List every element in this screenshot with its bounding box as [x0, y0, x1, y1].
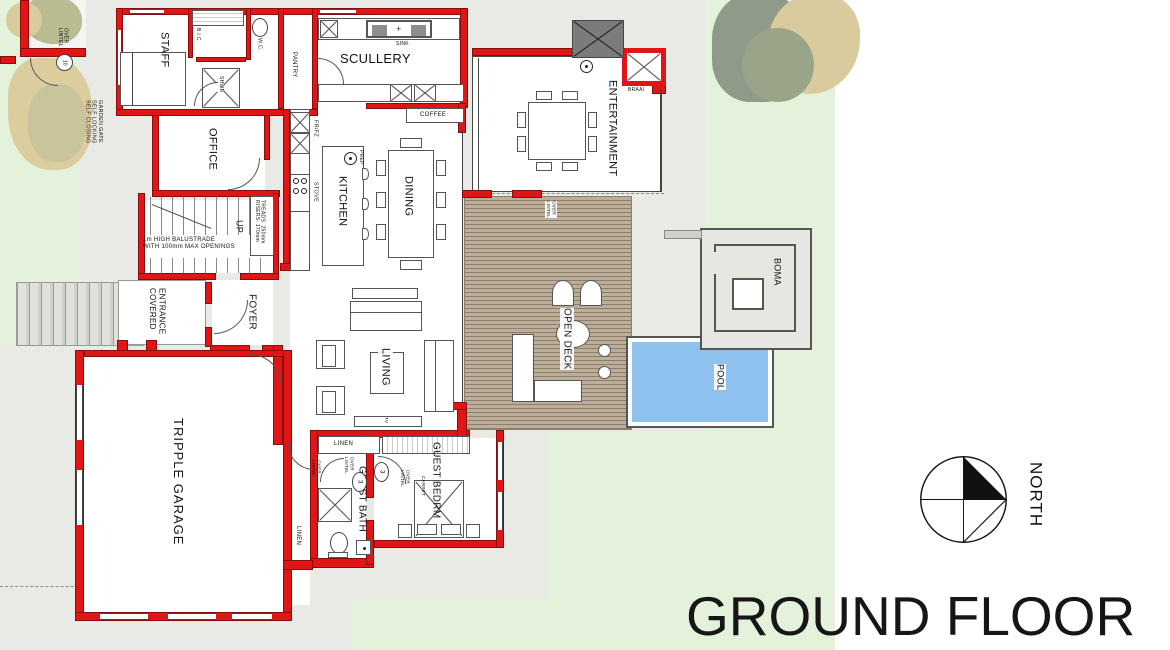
- pillow: [417, 524, 437, 535]
- wc-label: W.C.: [256, 38, 262, 51]
- pantry-label: PANTRY: [290, 52, 297, 78]
- window: [76, 470, 83, 525]
- fridge-freezer: [290, 133, 310, 154]
- closet: [382, 436, 470, 454]
- wall-segment: [196, 57, 246, 62]
- carpet-label: CARPET: [421, 476, 426, 496]
- deck-chair: [580, 280, 602, 306]
- covered-entrance-label: COVERED ENTRANCE: [148, 288, 166, 334]
- toilet-tank: [328, 552, 348, 558]
- sink-unit: +: [366, 20, 432, 38]
- wall-segment: [205, 282, 212, 304]
- window: [320, 9, 356, 14]
- armchair: [316, 340, 345, 369]
- chair: [376, 192, 386, 208]
- dishwasher: [320, 20, 338, 38]
- window: [100, 613, 148, 620]
- deck-chair: [552, 280, 574, 306]
- chair: [588, 136, 597, 152]
- north-label: NORTH: [1026, 462, 1046, 527]
- chair: [436, 224, 446, 240]
- entertainment-label: ENTERTAINMENT: [606, 80, 619, 176]
- kitchen-label: KITCHEN: [336, 176, 349, 226]
- up-label: UP: [234, 220, 244, 233]
- stove-plate: [301, 178, 307, 184]
- chair: [376, 160, 386, 176]
- braai-label: BRAAI: [628, 88, 645, 94]
- lintel-note: LINTEL OVER: [545, 201, 557, 218]
- lintel-note: LINTEL OVER: [56, 28, 68, 47]
- wall-segment: [0, 56, 16, 64]
- pillow: [441, 524, 461, 535]
- wall-segment: [205, 327, 212, 347]
- wall-segment: [138, 273, 216, 280]
- wall-segment: [374, 540, 504, 548]
- wall-segment: [278, 8, 284, 109]
- lintel-line: [462, 193, 664, 194]
- chair: [400, 138, 422, 148]
- wall-segment: [246, 8, 251, 60]
- fridge-label: FR/FZ: [312, 120, 318, 137]
- stove-plate: [293, 188, 299, 194]
- sofa: [350, 301, 422, 331]
- stove-plate: [293, 178, 299, 184]
- wall-segment: [264, 115, 270, 160]
- wall-segment: [283, 109, 290, 269]
- stool: [362, 198, 369, 210]
- door-number: 3: [357, 480, 363, 483]
- chair: [536, 91, 552, 100]
- bed: [120, 52, 186, 106]
- window: [497, 492, 503, 530]
- glass-wall: [462, 196, 463, 402]
- lawn: [352, 600, 548, 650]
- chair: [400, 260, 422, 270]
- guest-bedroom-label: GUEST BEDRM: [430, 442, 442, 518]
- dining-label: DINING: [402, 176, 415, 216]
- side-table: [398, 524, 412, 538]
- chimney: [572, 20, 624, 58]
- pool: [632, 342, 768, 422]
- wall-segment: [310, 558, 374, 568]
- shower: [318, 488, 352, 522]
- window: [497, 442, 503, 480]
- stool: [362, 228, 369, 240]
- stair-treads: [150, 258, 268, 273]
- office-label: OFFICE: [206, 128, 219, 170]
- garden-gate-note: SELF CLOSING SELF LOCKING GARDEN GATE: [84, 100, 103, 144]
- door-number-badge: 3: [374, 462, 389, 482]
- braai-unit: [622, 48, 666, 86]
- chair: [562, 91, 578, 100]
- glass-wall: [478, 58, 479, 192]
- basin: [356, 540, 371, 555]
- deck-side-table: [598, 366, 611, 379]
- wall-segment: [20, 48, 86, 57]
- glass-wall: [660, 90, 661, 192]
- armchair: [316, 386, 345, 415]
- ceiling-fan-icon: [580, 60, 593, 73]
- console-table: [352, 288, 418, 299]
- toilet: [330, 532, 348, 554]
- bic-label: B.I.C.: [194, 28, 200, 42]
- door-number: 3: [379, 470, 385, 473]
- living-label: LIVING: [378, 348, 393, 386]
- compass-icon: [916, 452, 1011, 547]
- wall-segment: [240, 273, 279, 280]
- wall-segment: [512, 190, 542, 198]
- wall-segment: [152, 115, 159, 195]
- chair: [436, 160, 446, 176]
- chair: [562, 162, 578, 171]
- appliance: [414, 84, 436, 102]
- prep-label: PREP: [357, 150, 363, 165]
- prep-bowl-icon: [344, 152, 357, 165]
- bed-line: [132, 53, 133, 105]
- door-number-badge: 3: [352, 472, 367, 492]
- chair: [436, 192, 446, 208]
- scullery-label: SCULLERY: [340, 52, 411, 67]
- pool-label: POOL: [714, 364, 726, 390]
- lintel-note: LINTEL OVER: [400, 470, 410, 487]
- bic-closet: [192, 10, 244, 26]
- door-number: 10: [62, 60, 68, 66]
- wall-segment: [116, 8, 468, 15]
- deck-sofa: [512, 334, 534, 402]
- linen-corridor-label: LINEN: [294, 526, 301, 545]
- deck-sofa: [534, 380, 582, 402]
- boma-opening: [712, 252, 718, 274]
- appliance: [390, 84, 412, 102]
- floor-plan: 10 LINTEL OVER SELF CLOSING SELF LOCKING…: [0, 0, 1170, 650]
- sink-label: SINK: [396, 42, 409, 48]
- glass-wall: [462, 130, 463, 192]
- boma-firepit: [732, 278, 764, 310]
- garage-label: TRIPPLE GARAGE: [170, 418, 185, 545]
- window: [168, 613, 216, 620]
- sofa: [424, 340, 454, 412]
- deck-step: [664, 230, 702, 239]
- tv-label: TV: [384, 417, 389, 423]
- chair: [376, 224, 386, 240]
- shrub: [28, 84, 86, 162]
- window: [232, 613, 272, 620]
- tree-canopy: [742, 28, 814, 102]
- entertainment-table: [528, 102, 586, 160]
- boma-label: BOMA: [772, 258, 782, 286]
- deck-side-table: [598, 344, 611, 357]
- door-number-badge: 10: [56, 54, 73, 71]
- stove-label: STOVE: [312, 182, 318, 202]
- stove-plate: [301, 188, 307, 194]
- page-title: GROUND FLOOR: [686, 584, 1135, 648]
- wall-segment: [273, 345, 283, 445]
- chair: [517, 136, 526, 152]
- stair-spec-note: RISERS: 170mm TREADS: 250mm: [253, 200, 265, 244]
- chair: [517, 112, 526, 128]
- lintel-note: LINTEL OVER: [311, 460, 321, 477]
- lintel-note: LINTEL OVER: [344, 457, 354, 474]
- chair: [588, 112, 597, 128]
- linen-closet-label: LINEN: [334, 441, 353, 448]
- wall-segment: [462, 190, 492, 198]
- site-paving: [0, 345, 80, 612]
- wall-segment: [283, 560, 313, 570]
- stool: [362, 168, 369, 180]
- wall-segment: [283, 350, 292, 618]
- toilet: [252, 18, 268, 37]
- staff-label: STAFF: [158, 32, 171, 68]
- chair: [536, 162, 552, 171]
- open-deck-label: OPEN DECK: [560, 308, 574, 370]
- window: [130, 9, 164, 14]
- side-table: [466, 524, 480, 538]
- window: [76, 385, 83, 440]
- fridge-freezer: [290, 112, 310, 133]
- coffee-label: COFFEE: [420, 112, 446, 119]
